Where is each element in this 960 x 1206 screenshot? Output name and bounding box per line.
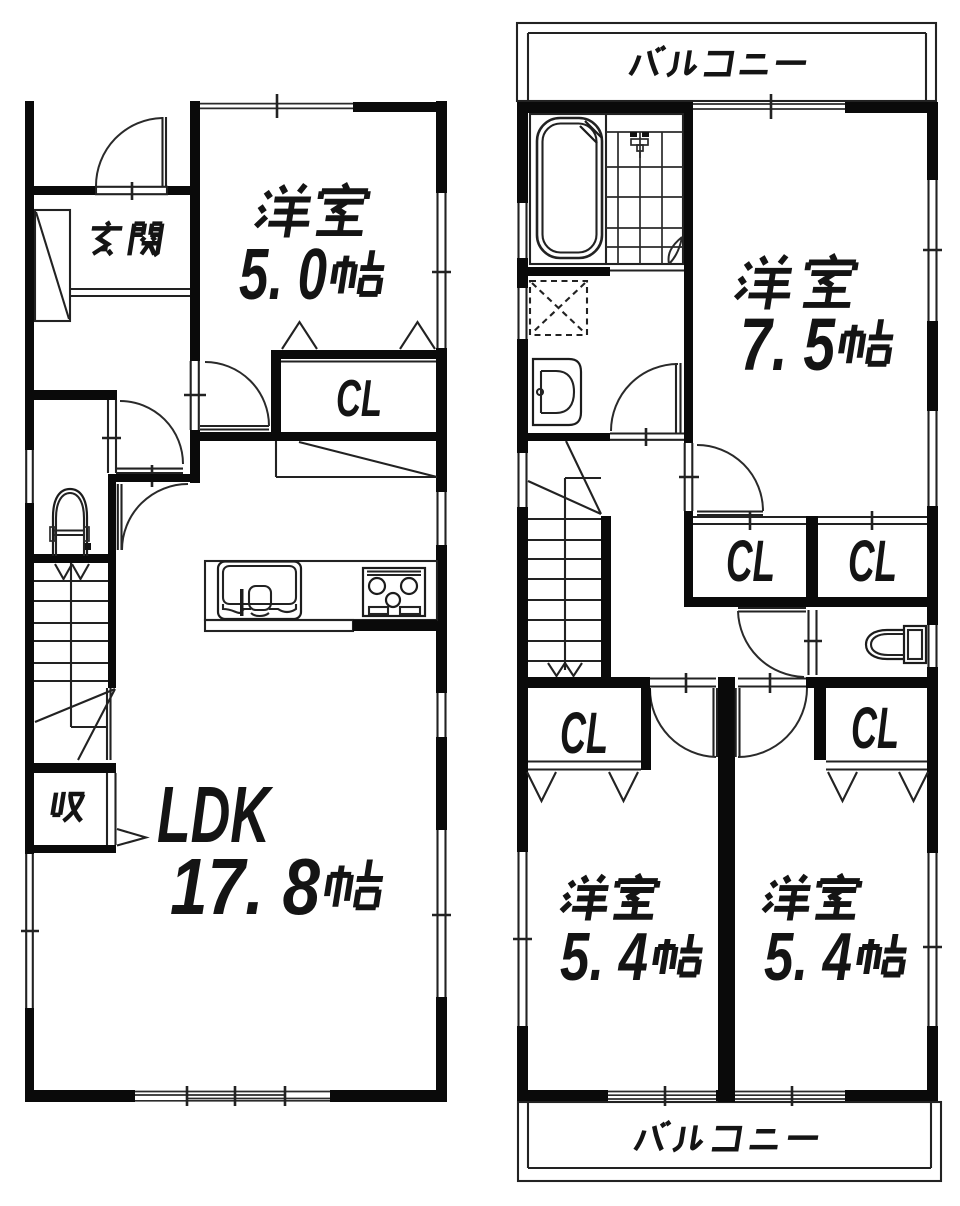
svg-text:CL: CL [848, 529, 897, 594]
svg-text:CL: CL [726, 529, 775, 594]
svg-text:5. 4: 5. 4 [764, 919, 852, 995]
svg-text:7. 5: 7. 5 [740, 303, 836, 386]
svg-text:5. 0: 5. 0 [239, 235, 327, 315]
svg-text:CL: CL [336, 370, 382, 428]
svg-text:CL: CL [560, 701, 608, 766]
svg-text:CL: CL [851, 696, 899, 761]
svg-text:5. 4: 5. 4 [560, 919, 648, 995]
svg-text:17. 8: 17. 8 [170, 842, 320, 931]
